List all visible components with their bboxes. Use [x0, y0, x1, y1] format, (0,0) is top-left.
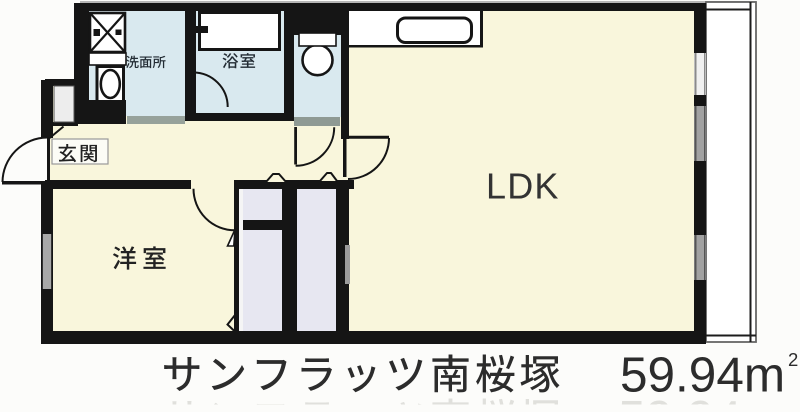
svg-text:2: 2 [788, 349, 798, 370]
svg-text:LDK: LDK [486, 166, 560, 207]
svg-text:59.94m: 59.94m [620, 348, 785, 403]
